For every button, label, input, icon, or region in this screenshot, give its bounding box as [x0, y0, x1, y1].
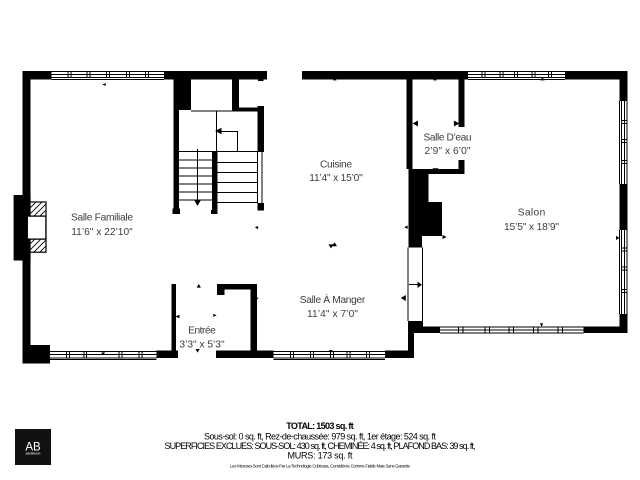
svg-text:Les Mesures Sont Calculées Par: Les Mesures Sont Calculées Par La Techno… [230, 464, 411, 469]
svg-text:11’6" x 22’10": 11’6" x 22’10" [71, 227, 133, 238]
svg-text:MURS: 173 sq. ft: MURS: 173 sq. ft [288, 451, 353, 461]
svg-text:TOTAL: 1503 sq. ft: TOTAL: 1503 sq. ft [286, 421, 354, 431]
svg-text:11’4" x 7’0": 11’4" x 7’0" [307, 309, 358, 320]
svg-text:AVENDREALOUER: AVENDREALOUER [26, 453, 41, 456]
svg-text:Salon: Salon [518, 207, 546, 218]
svg-text:Salle À Manger: Salle À Manger [300, 293, 366, 306]
svg-text:Salle Familiale: Salle Familiale [71, 213, 133, 224]
svg-text:SUPERFICIES EXCLUES: SOUS-SOL:: SUPERFICIES EXCLUES: SOUS-SOL: 430 sq. f… [165, 441, 476, 451]
svg-text:11’4" x 15’0": 11’4" x 15’0" [309, 173, 363, 184]
svg-text:Salle D’eau: Salle D’eau [424, 133, 472, 144]
svg-text:3’3" x 5’3": 3’3" x 5’3" [179, 339, 225, 350]
svg-text:Cuisine: Cuisine [320, 160, 352, 171]
svg-text:2’9" x 6’0": 2’9" x 6’0" [425, 146, 471, 157]
svg-text:Entrée: Entrée [188, 326, 216, 337]
svg-text:15’5" x 18’9": 15’5" x 18’9" [504, 222, 559, 233]
svg-text:Sous-sol: 0 sq. ft, Rez-de-cha: Sous-sol: 0 sq. ft, Rez-de-chaussée: 979… [204, 432, 436, 442]
